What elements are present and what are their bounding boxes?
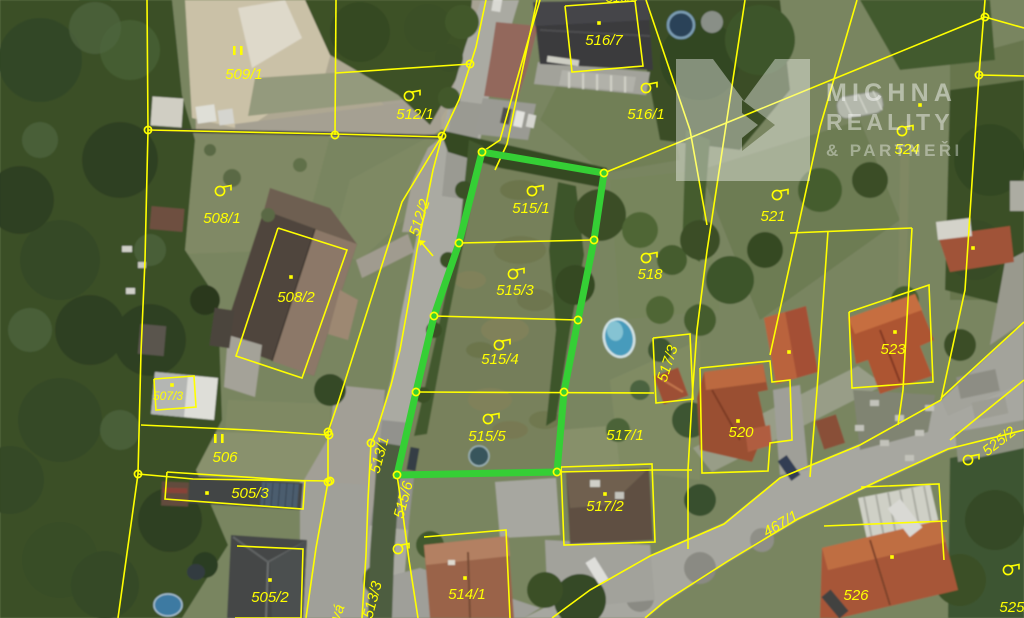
svg-text:517/2: 517/2 [586, 498, 624, 515]
svg-text:REALITY: REALITY [826, 109, 954, 135]
svg-text:525/: 525/ [999, 599, 1024, 616]
svg-text:515/1: 515/1 [512, 200, 550, 217]
svg-text:518: 518 [637, 266, 663, 283]
svg-text:508/1: 508/1 [203, 210, 241, 227]
svg-text:505/3: 505/3 [231, 485, 269, 502]
svg-text:521: 521 [760, 208, 785, 225]
svg-text:515/5: 515/5 [468, 428, 506, 445]
svg-text:509/1: 509/1 [225, 66, 263, 83]
svg-text:516/7: 516/7 [585, 32, 623, 49]
svg-text:507/3: 507/3 [153, 389, 183, 403]
svg-text:517/1: 517/1 [606, 427, 644, 444]
svg-text:506: 506 [212, 449, 238, 466]
svg-text:& PARTNEŘI: & PARTNEŘI [826, 141, 963, 160]
svg-text:516/9: 516/9 [606, 0, 639, 5]
svg-text:515/3: 515/3 [496, 282, 534, 299]
svg-text:508/2: 508/2 [277, 289, 315, 306]
svg-text:520: 520 [728, 424, 754, 441]
svg-text:MICHNA: MICHNA [826, 79, 957, 107]
svg-text:523: 523 [880, 341, 906, 358]
svg-text:526: 526 [843, 587, 869, 604]
svg-text:514/1: 514/1 [448, 586, 486, 603]
svg-text:505/2: 505/2 [251, 589, 289, 606]
svg-text:512/1: 512/1 [396, 106, 434, 123]
svg-text:515/4: 515/4 [481, 351, 519, 368]
svg-text:516/1: 516/1 [627, 106, 665, 123]
